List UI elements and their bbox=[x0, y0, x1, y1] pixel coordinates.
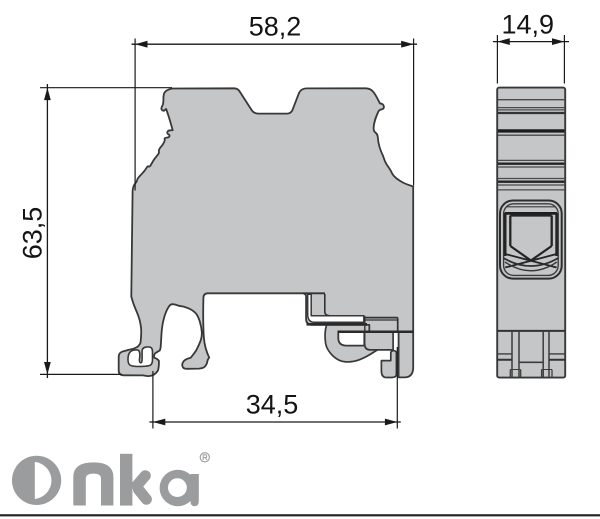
svg-text:34,5: 34,5 bbox=[246, 389, 299, 419]
svg-text:14,9: 14,9 bbox=[502, 9, 555, 39]
svg-text:58,2: 58,2 bbox=[249, 11, 302, 41]
svg-text:63,5: 63,5 bbox=[17, 207, 47, 260]
